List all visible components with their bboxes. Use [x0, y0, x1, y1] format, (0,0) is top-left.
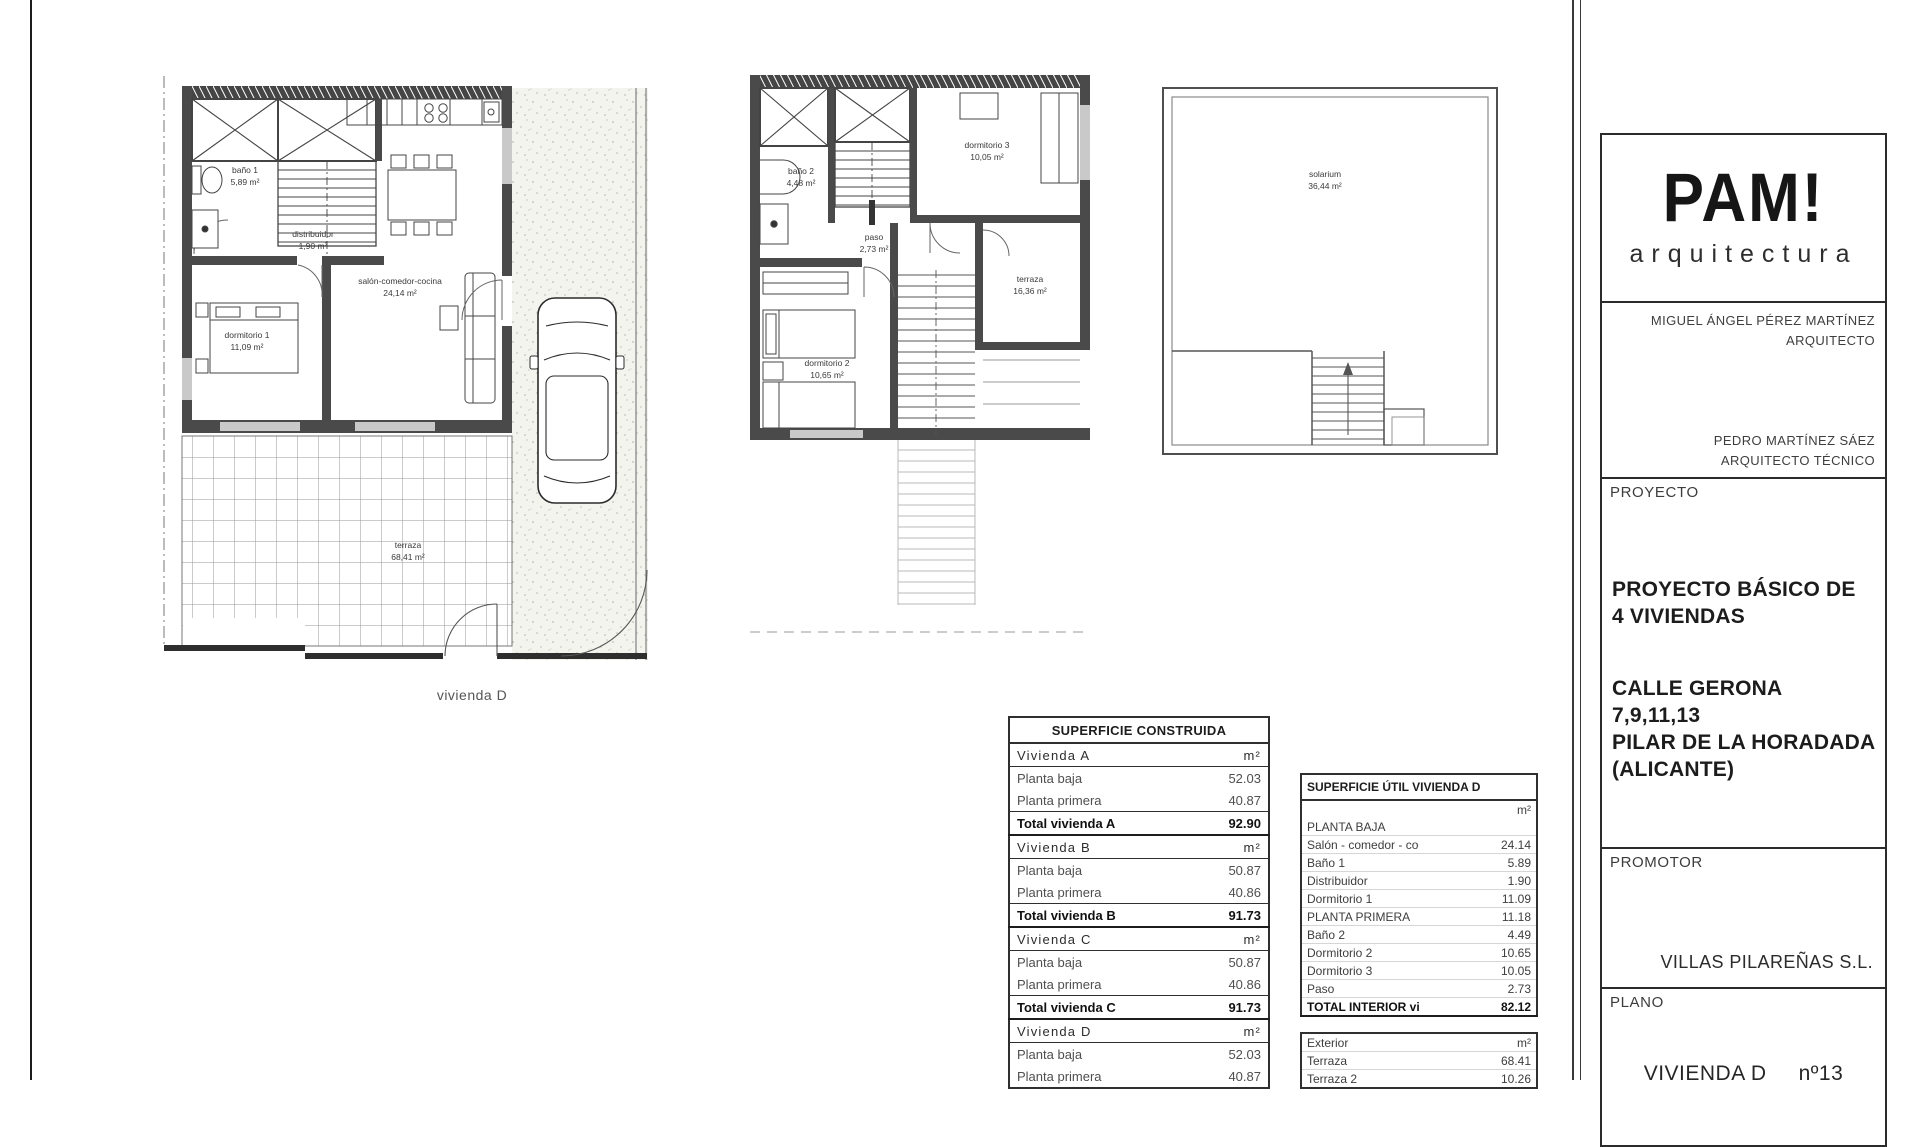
- cell-value: 68.41: [1419, 1052, 1537, 1070]
- cell-label: Terraza: [1301, 1052, 1419, 1070]
- cell-label: Planta baja: [1009, 767, 1139, 790]
- cell-value: 91.73: [1139, 904, 1269, 928]
- sheet-left-border: [30, 0, 32, 1080]
- cell-unit: m²: [1139, 743, 1269, 767]
- cell-value: 5.89: [1419, 854, 1537, 872]
- title-block: PAM! arquitectura MIGUEL ÁNGEL PÉREZ MAR…: [1600, 133, 1887, 1147]
- solarium-outline: [1163, 88, 1497, 454]
- promoter-name: VILLAS PILAREÑAS S.L.: [1661, 952, 1874, 973]
- solarium-stairs: [1312, 351, 1424, 445]
- terraza-area: 68,41 m²: [391, 552, 425, 562]
- cell-value: [1419, 818, 1537, 836]
- cell-label: Total vivienda B: [1009, 904, 1139, 928]
- cell-value: 40.87: [1139, 1065, 1269, 1088]
- cell-label: Dormitorio 2: [1301, 944, 1419, 962]
- distribuidor-area: 1,90 m²: [299, 241, 328, 251]
- cell-label: Vivienda A: [1009, 743, 1139, 767]
- cell-label: [1301, 800, 1419, 818]
- architects-section: MIGUEL ÁNGEL PÉREZ MARTÍNEZ ARQUITECTO P…: [1602, 303, 1885, 479]
- cell-label: Vivienda B: [1009, 835, 1139, 859]
- cell-label: Planta primera: [1009, 881, 1139, 904]
- cell-unit: m²: [1139, 835, 1269, 859]
- distribuidor-label: distribuidor: [292, 229, 334, 239]
- cell-value: 24.14: [1419, 836, 1537, 854]
- dormitorio3-area: 10,05 m²: [970, 152, 1004, 162]
- superficie-util-table: SUPERFICIE ÚTIL VIVIENDA D m² PLANTA BAJ…: [1300, 773, 1538, 1017]
- cell-label: Planta baja: [1009, 859, 1139, 882]
- floor-plan-planta-primera: baño 2 4,48 m² dormitorio 3 10,05 m² pas…: [745, 60, 1095, 690]
- sheet-number: nº13: [1799, 1062, 1844, 1086]
- sheet-section: PLANO VIVIENDA D nº13: [1602, 989, 1885, 1139]
- cell-label: Planta primera: [1009, 973, 1139, 996]
- cell-value: 2.73: [1419, 980, 1537, 998]
- lower-void-railing: [750, 440, 1090, 632]
- cell-label: Vivienda D: [1009, 1019, 1139, 1043]
- cell-value: 52.03: [1139, 767, 1269, 790]
- logo-section: PAM! arquitectura: [1602, 135, 1885, 303]
- solarium-area: 36,44 m²: [1308, 181, 1342, 191]
- cell-label: Distribuidor: [1301, 872, 1419, 890]
- cell-value: 10.26: [1419, 1070, 1537, 1089]
- cell-label: Salón - comedor - cocina: [1301, 836, 1419, 854]
- cell-unit: m²: [1139, 1019, 1269, 1043]
- technical-architect-role: ARQUITECTO TÉCNICO: [1602, 451, 1875, 471]
- cell-value: 40.86: [1139, 881, 1269, 904]
- bano2-area: 4,48 m²: [787, 178, 816, 188]
- cell-label: Planta baja: [1009, 951, 1139, 974]
- cell-value: 82.12: [1419, 998, 1537, 1017]
- dormitorio2-furniture: [763, 272, 855, 428]
- sheet-label: PLANO: [1602, 989, 1885, 1016]
- superficie-util-exterior-table: Exteriorm² Terraza68.41 Terraza 210.26: [1300, 1032, 1538, 1089]
- cell-value: 11.18: [1419, 908, 1537, 926]
- cell-value: 91.73: [1139, 996, 1269, 1020]
- superficie-construida-table: SUPERFICIE CONSTRUIDA Vivienda Am² Plant…: [1008, 716, 1270, 1089]
- cell-label: Paso: [1301, 980, 1419, 998]
- cell-label: Dormitorio 3: [1301, 962, 1419, 980]
- cell-value: 50.87: [1139, 951, 1269, 974]
- sheet-name: VIVIENDA D: [1644, 1062, 1767, 1086]
- stairs-up: [835, 88, 917, 225]
- plan-caption: vivienda D: [437, 687, 507, 703]
- floor-plan-planta-baja: baño 1 5,89 m² distribuidor 1,90 m² saló…: [150, 58, 655, 713]
- project-address-line3: PILAR DE LA HORADADA: [1612, 729, 1885, 756]
- solarium-name: solarium: [1309, 169, 1341, 179]
- project-title-line2: 4 VIVIENDAS: [1612, 603, 1885, 630]
- title-block-separator-line: [1572, 0, 1574, 1080]
- salon-label: salón-comedor-cocina: [358, 276, 442, 286]
- paso-label: paso: [865, 232, 884, 242]
- dormitorio2-label: dormitorio 2: [805, 358, 850, 368]
- cell-label: Total vivienda C: [1009, 996, 1139, 1020]
- cell-value: 92.90: [1139, 812, 1269, 836]
- car: [530, 298, 624, 503]
- cell-unit: m²: [1419, 1033, 1537, 1052]
- cell-label: PLANTA BAJA: [1301, 818, 1419, 836]
- project-address-line4: (ALICANTE): [1612, 756, 1885, 783]
- terraza-label: terraza: [1017, 274, 1044, 284]
- project-title-line1: PROYECTO BÁSICO DE: [1612, 576, 1885, 603]
- table-title: SUPERFICIE CONSTRUIDA: [1009, 717, 1269, 743]
- floor-plan-solarium: solarium 36,44 m²: [1160, 85, 1500, 460]
- cell-value: 40.86: [1139, 973, 1269, 996]
- pam-logo-subtitle: arquitectura: [1629, 240, 1857, 269]
- solarium-label: solarium 36,44 m²: [1308, 169, 1342, 191]
- bano1-label: baño 1: [232, 165, 258, 175]
- cell-value: 1.90: [1419, 872, 1537, 890]
- project-label: PROYECTO: [1602, 479, 1885, 506]
- dormitorio3-furniture: [960, 93, 1078, 183]
- cell-label: Baño 2: [1301, 926, 1419, 944]
- cell-label: Planta baja: [1009, 1043, 1139, 1066]
- cell-label: TOTAL INTERIOR vivienda: [1301, 998, 1419, 1017]
- dormitorio1-label: dormitorio 1: [225, 330, 270, 340]
- cell-unit: m²: [1139, 927, 1269, 951]
- cell-value: 10.05: [1419, 962, 1537, 980]
- dining-table: [388, 155, 456, 235]
- bano2-label: baño 2: [788, 166, 814, 176]
- cell-value: 11.09: [1419, 890, 1537, 908]
- cell-label: Terraza 2: [1301, 1070, 1419, 1089]
- cell-label: PLANTA PRIMERA: [1301, 908, 1419, 926]
- title-block-separator-line-2: [1580, 0, 1581, 1080]
- sofa: [440, 273, 495, 403]
- cell-label: Planta primera: [1009, 789, 1139, 812]
- cell-label: Dormitorio 1: [1301, 890, 1419, 908]
- salon-area: 24,14 m²: [383, 288, 417, 298]
- architect-name: MIGUEL ÁNGEL PÉREZ MARTÍNEZ: [1602, 311, 1875, 331]
- terraza-label: terraza: [395, 540, 422, 550]
- cell-label: Total vivienda A: [1009, 812, 1139, 836]
- dormitorio2-area: 10,65 m²: [810, 370, 844, 380]
- project-section: PROYECTO PROYECTO BÁSICO DE 4 VIVIENDAS …: [1602, 479, 1885, 849]
- stairs-down: [898, 270, 1080, 435]
- pam-logo: PAM!: [1663, 164, 1825, 232]
- cell-value: 4.49: [1419, 926, 1537, 944]
- architect-role: ARQUITECTO: [1602, 331, 1875, 351]
- bano1-area: 5,89 m²: [231, 177, 260, 187]
- terraza-area: 16,36 m²: [1013, 286, 1047, 296]
- cell-label: Vivienda C: [1009, 927, 1139, 951]
- bathroom-fixtures: [192, 166, 222, 248]
- promoter-section: PROMOTOR VILLAS PILAREÑAS S.L.: [1602, 849, 1885, 989]
- project-address-line1: CALLE GERONA: [1612, 675, 1885, 702]
- cell-value: 50.87: [1139, 859, 1269, 882]
- technical-architect-name: PEDRO MARTÍNEZ SÁEZ: [1602, 431, 1875, 451]
- cell-label: Exterior: [1301, 1033, 1419, 1052]
- terrace-grid: [182, 436, 512, 646]
- cell-value: 52.03: [1139, 1043, 1269, 1066]
- project-address-line2: 7,9,11,13: [1612, 702, 1885, 729]
- promoter-label: PROMOTOR: [1602, 849, 1885, 876]
- cell-label: Baño 1: [1301, 854, 1419, 872]
- cell-unit: m²: [1419, 800, 1537, 818]
- paso-area: 2,73 m²: [860, 244, 889, 254]
- cell-value: 10.65: [1419, 944, 1537, 962]
- cell-value: 40.87: [1139, 789, 1269, 812]
- cell-label: Planta primera: [1009, 1065, 1139, 1088]
- dormitorio3-label: dormitorio 3: [965, 140, 1010, 150]
- dormitorio1-area: 11,09 m²: [231, 342, 264, 352]
- table-title: SUPERFICIE ÚTIL VIVIENDA D: [1301, 774, 1537, 800]
